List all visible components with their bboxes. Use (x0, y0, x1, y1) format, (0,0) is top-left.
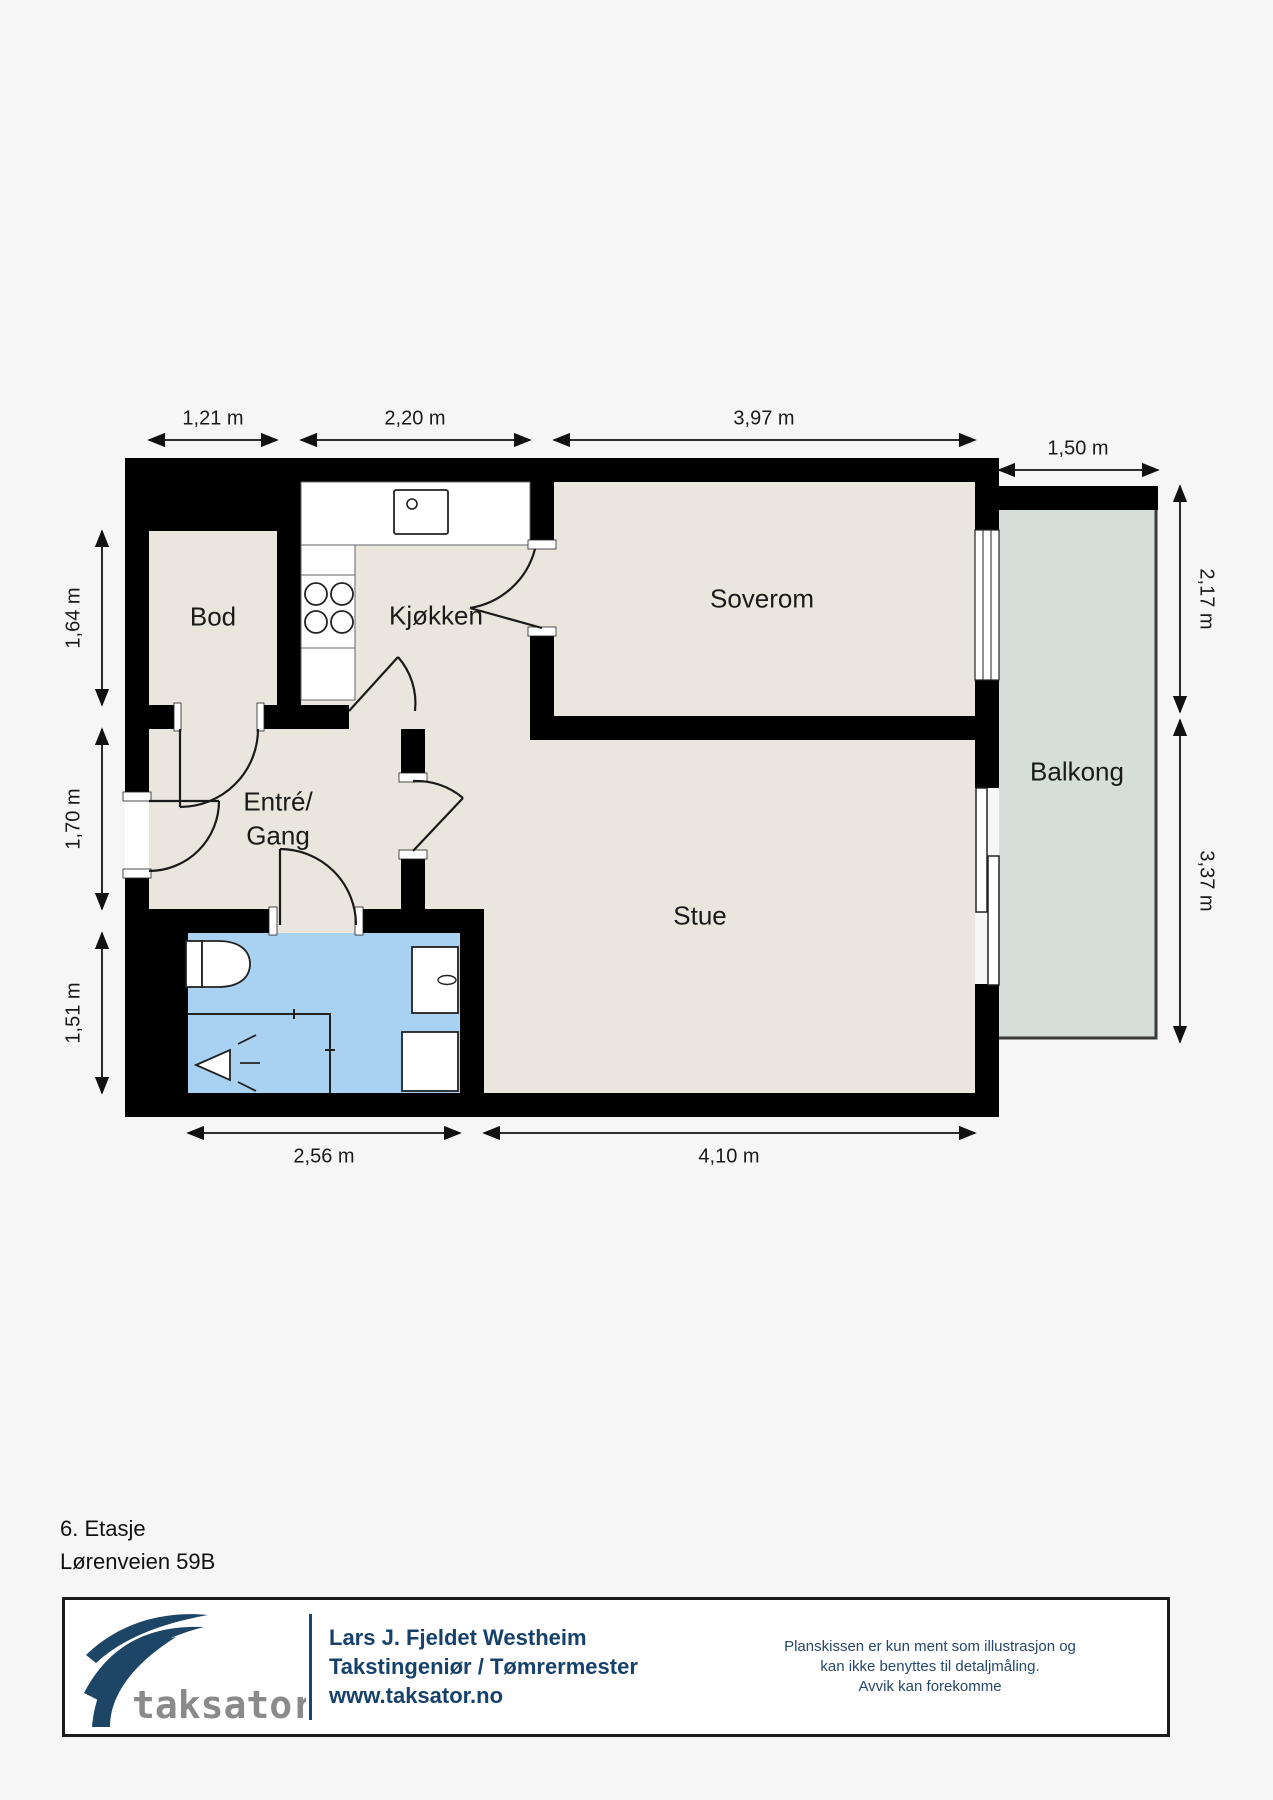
floorplan-graphics (0, 0, 1273, 1800)
dim-label-top-1: 1,21 m (182, 408, 243, 431)
footer-disclaimer: Planskissen er kun ment som illustrasjon… (705, 1600, 1155, 1734)
dim-label-right-1: 2,17 m (1195, 568, 1218, 629)
disclaimer-line: Avvik kan forekomme (705, 1677, 1155, 1697)
footer-divider (309, 1614, 312, 1720)
footer-title: Takstingeniør / Tømrermester (329, 1654, 638, 1680)
dim-label-left-2: 1,70 m (63, 788, 86, 849)
dim-label-balcony-width: 1,50 m (1047, 438, 1108, 461)
logo-text: taksator (132, 1683, 306, 1727)
room-label-entre-line1: Entré/ (243, 787, 312, 818)
dim-label-top-2: 2,20 m (384, 408, 445, 431)
room-label-balkong: Balkong (1030, 757, 1124, 788)
room-label-kjokken: Kjøkken (389, 601, 483, 632)
dim-label-bottom-1: 2,56 m (293, 1146, 354, 1169)
dim-label-left-3: 1,51 m (63, 982, 86, 1043)
room-label-entre-line2: Gang (246, 821, 310, 852)
washing-machine-icon (402, 1032, 458, 1091)
footer-contact: Lars J. Fjeldet Westheim Takstingeniør /… (329, 1600, 638, 1734)
kitchen-sink-icon (394, 490, 448, 534)
taksator-logo: taksator (76, 1605, 306, 1735)
address-label: Lørenveien 59B (60, 1549, 215, 1575)
dim-label-top-3: 3,97 m (733, 408, 794, 431)
shower-icon (188, 1009, 335, 1093)
washbasin-icon (412, 947, 458, 1013)
footer-name: Lars J. Fjeldet Westheim (329, 1625, 638, 1651)
room-label-soverom: Soverom (710, 584, 814, 615)
room-label-bod: Bod (190, 602, 236, 633)
room-label-stue: Stue (673, 901, 727, 932)
toilet-icon (186, 941, 250, 987)
dim-label-right-2: 3,37 m (1195, 850, 1218, 911)
footer-website: www.taksator.no (329, 1683, 638, 1709)
floor-label: 6. Etasje (60, 1516, 146, 1542)
disclaimer-line: Planskissen er kun ment som illustrasjon… (705, 1637, 1155, 1657)
dim-label-left-1: 1,64 m (63, 587, 86, 648)
sliding-door (975, 788, 999, 985)
footer: taksator Lars J. Fjeldet Westheim Taksti… (62, 1597, 1170, 1737)
window (975, 530, 999, 680)
disclaimer-line: kan ikke benyttes til detaljmåling. (705, 1657, 1155, 1677)
dim-label-bottom-2: 4,10 m (698, 1146, 759, 1169)
